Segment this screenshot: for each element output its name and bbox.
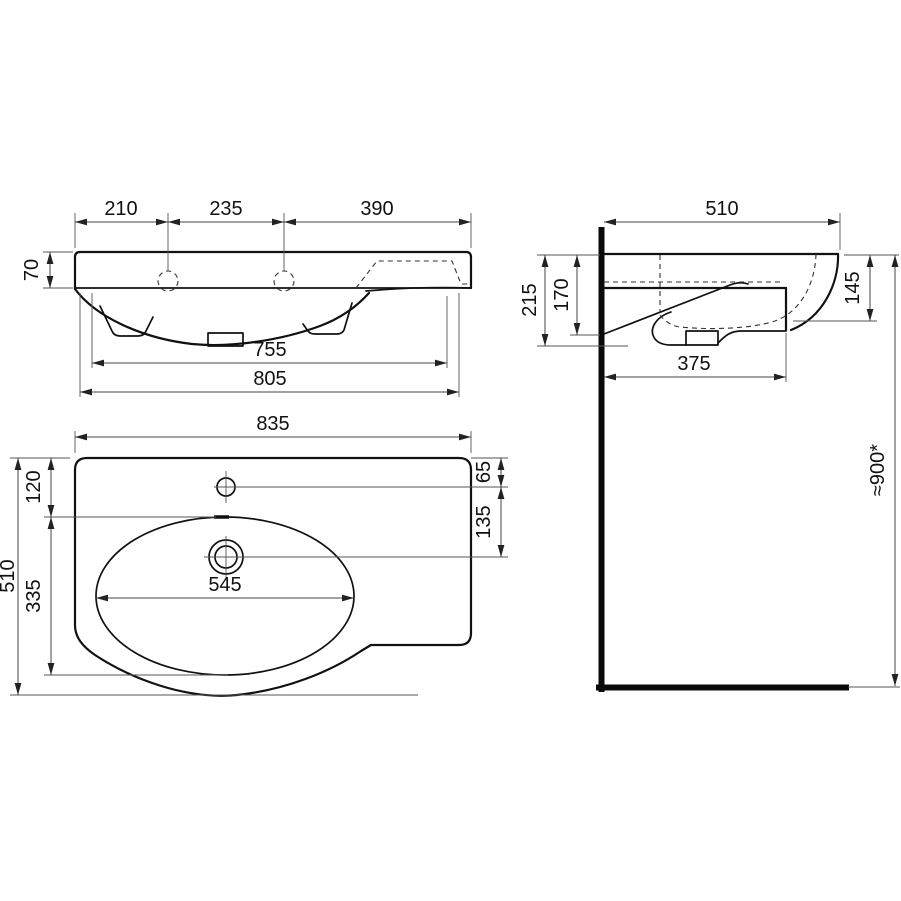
dim-plan-120: 120 [23, 470, 45, 503]
side-bottom-ledge [718, 331, 786, 343]
side-hidden-bowl-curve [660, 254, 816, 329]
side-drain-boss [686, 331, 718, 345]
front-elevation-view: 210 235 390 70 755 805 [21, 198, 471, 397]
front-rim-outline [75, 252, 471, 289]
washbasin-technical-drawing: 210 235 390 70 755 805 [0, 0, 901, 901]
dim-front-235: 235 [209, 198, 242, 220]
plan-dimensions: 835 510 120 335 545 65 135 [0, 413, 508, 695]
dim-plan-835: 835 [256, 413, 289, 435]
dim-front-390: 390 [360, 198, 393, 220]
dim-side-215: 215 [519, 283, 541, 316]
side-dimensions: 510 215 170 145 375 ≈900* [519, 198, 900, 687]
plan-view: 835 510 120 335 545 65 135 [0, 413, 508, 696]
front-hidden-ledge [356, 261, 471, 288]
dim-front-70: 70 [21, 259, 43, 281]
dim-plan-65: 65 [473, 461, 495, 483]
dim-side-145: 145 [842, 271, 864, 304]
side-siphon-arc [652, 312, 686, 345]
dim-plan-335: 335 [23, 579, 45, 612]
dim-front-805: 805 [253, 368, 286, 390]
dim-front-210: 210 [104, 198, 137, 220]
side-section-view: 510 215 170 145 375 ≈900* [519, 198, 900, 689]
dim-plan-545: 545 [208, 574, 241, 596]
drawing-canvas: 210 235 390 70 755 805 [0, 0, 901, 901]
dim-side-510: 510 [705, 198, 738, 220]
front-left-lug [100, 306, 153, 336]
plan-outline [75, 458, 471, 696]
dim-side-height: ≈900* [867, 444, 889, 496]
front-dimensions: 210 235 390 70 755 805 [21, 198, 471, 397]
dim-front-755: 755 [253, 339, 286, 361]
dim-side-170: 170 [551, 278, 573, 311]
plan-faucet-crosshair [214, 471, 508, 503]
dim-plan-510: 510 [0, 559, 19, 592]
dim-plan-135: 135 [473, 505, 495, 538]
dim-side-375: 375 [677, 353, 710, 375]
plan-drain-crosshair [204, 536, 508, 578]
